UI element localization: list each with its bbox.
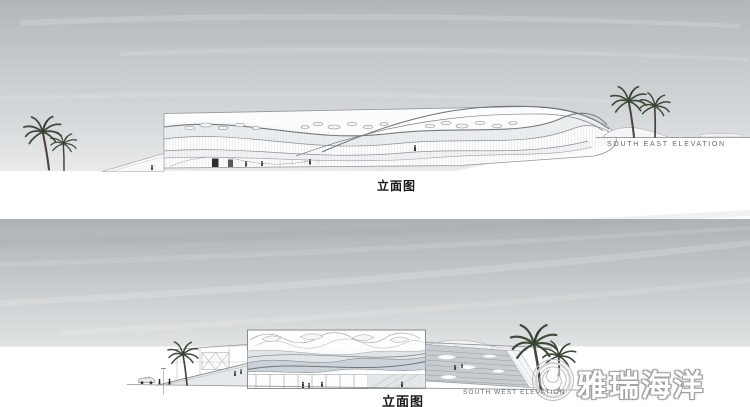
- car-silhouette: [139, 377, 156, 384]
- person-silhouette: [461, 364, 462, 368]
- south-west-elevation-caption: SOUTH WEST ELEVATION: [463, 389, 566, 396]
- elevation-label-cn-bottom: 立面图: [382, 391, 424, 407]
- person-silhouette: [454, 365, 456, 370]
- person-silhouette: [169, 379, 171, 385]
- watermark-text: 雅瑞海洋: [577, 361, 705, 405]
- person-silhouette: [151, 165, 153, 170]
- elevation-label-cn-top: 立面图: [377, 177, 416, 194]
- person-silhouette: [245, 161, 247, 166]
- person-silhouette: [240, 369, 242, 374]
- person-silhouette: [261, 161, 263, 166]
- person-silhouette: [234, 371, 236, 376]
- person-silhouette: [309, 159, 311, 164]
- person-silhouette: [159, 379, 161, 384]
- terrace-wing-sw: [426, 343, 553, 388]
- south-east-elevation-caption: SOUTH EAST ELEVATION: [607, 141, 726, 148]
- person-silhouette: [401, 382, 403, 387]
- person-silhouette: [414, 145, 416, 151]
- architectural-elevation-board: 立面图 SOUTH EAST ELEVATION 立面图 SOUTH WEST …: [0, 0, 750, 407]
- glazing-wave-bands-sw: [248, 350, 426, 373]
- person-silhouette: [308, 383, 310, 388]
- sign-post: [161, 369, 166, 395]
- elevation-drawings-canvas: [0, 0, 750, 407]
- distant-mound-sketch: [700, 134, 742, 138]
